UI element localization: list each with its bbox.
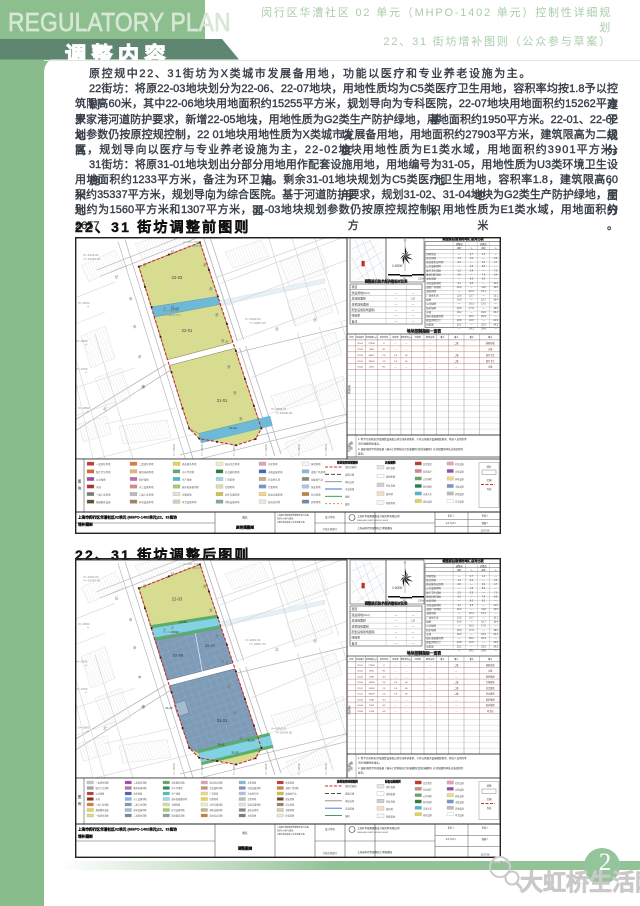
svg-text:配套设施建筑面积: 配套设施建筑面积 xyxy=(352,307,375,312)
svg-text:调整前后技术经济指标对比表: 调整前后技术经济指标对比表 xyxy=(365,601,409,606)
svg-text:原控规图则: 原控规图则 xyxy=(236,525,254,530)
svg-text:配套设施建筑面积: 配套设施建筑面积 xyxy=(352,629,375,634)
svg-text:—: — xyxy=(495,576,498,578)
svg-text:G2: G2 xyxy=(383,705,387,707)
svg-text:20.2: 20.2 xyxy=(469,316,474,318)
svg-text:—: — xyxy=(482,320,485,322)
svg-text:道路广场用地: 道路广场用地 xyxy=(311,470,326,474)
svg-text:—: — xyxy=(495,329,498,331)
svg-text:—: — xyxy=(412,614,415,617)
svg-text:1.8: 1.8 xyxy=(394,361,398,363)
svg-text:E1: E1 xyxy=(383,367,386,369)
svg-text:23.5: 23.5 xyxy=(481,324,486,326)
svg-text:—: — xyxy=(429,711,432,713)
svg-text:13.1: 13.1 xyxy=(481,613,486,615)
svg-text:1.3: 1.3 xyxy=(458,258,462,260)
svg-text:专科医院: 专科医院 xyxy=(486,680,496,684)
svg-text:—: — xyxy=(458,266,461,268)
svg-text:道路用地: 道路用地 xyxy=(426,289,436,293)
svg-text:22-01: 22-01 xyxy=(182,328,193,333)
svg-text:—: — xyxy=(395,614,398,617)
svg-text:Y=-19000: Y=-19000 xyxy=(200,443,204,456)
svg-text:15262: 15262 xyxy=(369,688,376,690)
svg-text:13.1: 13.1 xyxy=(481,291,486,293)
svg-text:13.7: 13.7 xyxy=(469,617,474,619)
svg-text:E1: E1 xyxy=(383,671,386,673)
svg-text:建筑限高(m): 建筑限高(m) xyxy=(401,335,413,339)
svg-text:水域: 水域 xyxy=(488,365,493,369)
svg-text:界线: 界线 xyxy=(487,806,492,810)
svg-text:15.7: 15.7 xyxy=(481,300,486,302)
svg-text:31-04: 31-04 xyxy=(247,739,255,743)
svg-text:24.8: 24.8 xyxy=(481,329,486,331)
svg-text:—: — xyxy=(429,705,432,707)
svg-text:Y=-19467.60: Y=-19467.60 xyxy=(83,579,101,583)
svg-text:—: — xyxy=(429,343,432,345)
svg-text:—: — xyxy=(395,625,398,628)
svg-text:%: % xyxy=(471,248,473,250)
svg-text:2. 城建(规划下阶段依据《城市工程管线综合实施细则(试)实: 2. 城建(规划下阶段依据《城市工程管线综合实施细则(试)实施细则》在控规图则中… xyxy=(358,447,464,451)
svg-text:街坊: 街坊 xyxy=(350,657,354,661)
svg-text:街坊: 街坊 xyxy=(350,335,354,339)
svg-text:Y=-19000: Y=-19000 xyxy=(232,443,236,456)
svg-text:+: + xyxy=(87,305,89,309)
svg-text:绿地: 绿地 xyxy=(426,298,431,302)
svg-text:12.5: 12.5 xyxy=(493,287,498,289)
svg-text:面积: 面积 xyxy=(457,246,461,250)
svg-text:用地面积(㎡): 用地面积(㎡) xyxy=(366,335,378,339)
svg-text:—: — xyxy=(455,699,458,701)
svg-text:商业服务业用地: 商业服务业用地 xyxy=(426,260,444,264)
svg-text:5.3: 5.3 xyxy=(482,266,486,268)
svg-text:22.9: 22.9 xyxy=(493,642,498,644)
svg-text:—: — xyxy=(405,671,408,673)
svg-text:2.6: 2.6 xyxy=(458,584,462,586)
svg-text:19.6: 19.6 xyxy=(481,312,486,314)
svg-text:3.4: 3.4 xyxy=(494,580,498,582)
svg-text:容积率: 容积率 xyxy=(392,335,398,339)
svg-text:—: — xyxy=(482,617,485,619)
svg-text:罗: 罗 xyxy=(163,307,166,311)
svg-text:城市发展备用地: 城市发展备用地 xyxy=(426,314,444,318)
svg-text:—: — xyxy=(470,312,473,314)
svg-text:对外交通用地: 对外交通用地 xyxy=(225,493,240,497)
svg-text:%: % xyxy=(495,248,497,250)
svg-text:—: — xyxy=(394,343,397,345)
svg-text:—: — xyxy=(405,699,408,701)
svg-text:建筑限高(m): 建筑限高(m) xyxy=(401,657,413,661)
svg-text:—: — xyxy=(455,367,458,369)
svg-text:Y=-19000: Y=-19000 xyxy=(232,763,236,775)
svg-text:22-01: 22-01 xyxy=(357,343,363,345)
svg-text:30517: 30517 xyxy=(369,355,376,357)
svg-text:用地面积(㎡): 用地面积(㎡) xyxy=(366,657,378,661)
svg-text:配套设施: 配套设施 xyxy=(426,335,434,339)
svg-text:设计单位: 设计单位 xyxy=(325,515,336,519)
svg-text:Y=-19000: Y=-19000 xyxy=(324,763,328,775)
svg-text:—: — xyxy=(429,355,432,357)
svg-text:—: — xyxy=(495,651,498,653)
svg-text:—: — xyxy=(482,580,485,582)
svg-text:22.1: 22.1 xyxy=(457,324,462,326)
svg-text:综合用地: 综合用地 xyxy=(311,493,321,497)
svg-text:)在控规图则中落实。: )在控规图则中落实。 xyxy=(358,442,381,446)
svg-text:医疗卫生用地: 医疗卫生用地 xyxy=(426,268,441,272)
svg-text:27903: 27903 xyxy=(369,343,376,345)
svg-text:—: — xyxy=(458,316,461,318)
svg-text:—: — xyxy=(429,349,432,351)
svg-text:调整前后技术经济指标对比表: 调整前后技术经济指标对比表 xyxy=(365,279,409,284)
svg-text:—: — xyxy=(405,665,408,667)
svg-text:5.2: 5.2 xyxy=(458,270,462,272)
svg-text:22-02: 22-02 xyxy=(357,671,363,673)
svg-text:按原控规: 按原控规 xyxy=(486,341,496,345)
svg-text:24.2: 24.2 xyxy=(493,324,498,326)
svg-text:变电站用地: 变电站用地 xyxy=(268,500,281,504)
svg-text:调整前: 调整前 xyxy=(456,242,464,246)
svg-text:20.8: 20.8 xyxy=(457,320,462,322)
svg-text:防护绿地: 防护绿地 xyxy=(486,697,496,701)
svg-text:X: X xyxy=(383,343,385,345)
svg-text:—: — xyxy=(495,291,498,293)
svg-text:—: — xyxy=(394,665,397,667)
svg-text:22-06: 22-06 xyxy=(173,653,184,658)
svg-text:20.9: 20.9 xyxy=(481,316,486,318)
svg-text:建设用地合计: 建设用地合计 xyxy=(426,318,441,322)
svg-text:36570: 36570 xyxy=(369,361,376,363)
svg-text:—: — xyxy=(482,308,485,310)
svg-text:综合医院: 综合医院 xyxy=(486,692,496,696)
svg-text:—: — xyxy=(458,613,461,615)
svg-text:备注: 备注 xyxy=(470,657,474,661)
svg-text:—: — xyxy=(482,258,485,260)
svg-text:9.2: 9.2 xyxy=(482,601,486,603)
svg-text:Y=-19006.82: Y=-19006.82 xyxy=(275,731,293,735)
svg-text:二级: 二级 xyxy=(454,686,459,690)
svg-text:—: — xyxy=(495,638,498,640)
svg-text:—: — xyxy=(394,711,397,713)
svg-text:C5: C5 xyxy=(383,688,387,690)
svg-text:8.5: 8.5 xyxy=(470,601,474,603)
svg-text:%: % xyxy=(495,570,497,572)
svg-text:一类工业用地: 一类工业用地 xyxy=(96,493,111,497)
svg-text:+: + xyxy=(87,730,89,734)
svg-text:1.4: 1.4 xyxy=(482,576,486,578)
svg-text:二类居住用地: 二类居住用地 xyxy=(139,462,154,466)
svg-text:其他图例: 其他图例 xyxy=(384,461,396,465)
svg-text:广场用地: 广场用地 xyxy=(225,477,235,481)
svg-text:公共设施用地: 公共设施用地 xyxy=(426,264,441,268)
svg-text:公共绿地: 公共绿地 xyxy=(426,624,436,628)
svg-text:1.4: 1.4 xyxy=(482,254,486,256)
svg-text:居住用地: 居住用地 xyxy=(426,256,436,260)
svg-text:—: — xyxy=(482,642,485,644)
svg-text:1560: 1560 xyxy=(369,699,375,701)
svg-text:—: — xyxy=(429,694,432,696)
svg-text:+: + xyxy=(85,371,87,375)
svg-text:地块编号: 地块编号 xyxy=(356,657,364,661)
svg-text:2.0: 2.0 xyxy=(470,580,474,582)
svg-text:2657: 2657 xyxy=(369,367,375,369)
svg-text:教育科研用地: 教育科研用地 xyxy=(426,595,441,599)
svg-text:9.2: 9.2 xyxy=(482,279,486,281)
svg-text:用地性质: 用地性质 xyxy=(380,335,388,339)
svg-text:控制用地: 控制用地 xyxy=(225,485,235,489)
svg-text:21.5: 21.5 xyxy=(469,320,474,322)
svg-text:—: — xyxy=(458,291,461,293)
svg-text:总用地: 总用地 xyxy=(426,644,434,648)
svg-text:其他用地: 其他用地 xyxy=(311,500,321,504)
svg-text:—: — xyxy=(429,688,432,690)
svg-text:社会福利用地: 社会福利用地 xyxy=(225,470,240,474)
svg-text:14.3: 14.3 xyxy=(457,300,462,302)
svg-text:建设用地(hm²): 建设用地(hm²) xyxy=(352,612,371,617)
svg-text:上海复旦规划建筑设计研究院有限公司: 上海复旦规划建筑设计研究院有限公司 xyxy=(357,826,400,830)
svg-text:调整前: 调整前 xyxy=(456,564,464,568)
svg-text:例: 例 xyxy=(78,801,82,806)
svg-text:31-01: 31-01 xyxy=(217,718,228,723)
svg-text:C5: C5 xyxy=(383,355,387,357)
svg-text:7.3: 7.3 xyxy=(494,592,498,594)
svg-text:—: — xyxy=(429,682,432,684)
svg-text:—: — xyxy=(412,309,415,312)
svg-text:—: — xyxy=(495,254,498,256)
svg-text:界线: 界线 xyxy=(487,487,492,491)
svg-text:31-04: 31-04 xyxy=(357,705,363,707)
svg-text:11.8: 11.8 xyxy=(481,609,486,611)
svg-text:20.3: 20.3 xyxy=(493,634,498,636)
svg-text:项目: 项目 xyxy=(352,285,358,289)
svg-text:备注: 备注 xyxy=(454,657,458,661)
svg-text:22-03: 22-03 xyxy=(357,355,363,357)
svg-text:22.9: 22.9 xyxy=(493,320,498,322)
svg-text:18.2: 18.2 xyxy=(457,312,462,314)
svg-text:3.4: 3.4 xyxy=(494,258,498,260)
svg-text:体育用地: 体育用地 xyxy=(311,462,321,466)
svg-text:地块控制指标一览表: 地块控制指标一览表 xyxy=(407,329,441,334)
svg-text:%: % xyxy=(471,570,473,572)
svg-text:1.3: 1.3 xyxy=(458,580,462,582)
svg-text:—: — xyxy=(495,304,498,306)
svg-text:20.8: 20.8 xyxy=(457,642,462,644)
svg-text:—: — xyxy=(429,699,432,701)
svg-text:20.3: 20.3 xyxy=(493,312,498,314)
svg-text:31-01: 31-01 xyxy=(217,398,228,403)
svg-text:—: — xyxy=(405,343,408,345)
svg-text:调整后: 调整后 xyxy=(480,564,488,568)
svg-text:医疗卫生: 医疗卫生 xyxy=(486,359,496,363)
svg-text:1.8: 1.8 xyxy=(411,297,415,301)
svg-text:—: — xyxy=(395,292,398,295)
svg-text:1.8: 1.8 xyxy=(394,694,398,696)
svg-text:+: + xyxy=(85,664,87,668)
svg-text:—: — xyxy=(395,620,398,623)
svg-text:16.9: 16.9 xyxy=(457,630,462,632)
svg-text:绿地率: 绿地率 xyxy=(415,335,421,339)
svg-text:10.4: 10.4 xyxy=(457,287,462,289)
svg-text:仓储用地: 仓储用地 xyxy=(182,493,192,497)
svg-text:行政主管部门: 行政主管部门 xyxy=(323,851,338,855)
svg-text:31-03: 31-03 xyxy=(357,367,363,369)
svg-text:—: — xyxy=(412,625,415,628)
svg-text:—: — xyxy=(394,705,397,707)
svg-text:—: — xyxy=(412,303,415,306)
svg-text:范围: 范围 xyxy=(486,797,492,801)
svg-text:环卫设施用地: 环卫设施用地 xyxy=(182,500,197,504)
svg-text:面积: 面积 xyxy=(481,246,485,250)
svg-text:道路广场用地: 道路广场用地 xyxy=(426,285,441,289)
svg-text:60: 60 xyxy=(405,694,408,696)
svg-text:60: 60 xyxy=(405,361,408,363)
svg-text:医疗卫生: 医疗卫生 xyxy=(486,353,496,357)
svg-text:图名: 图名 xyxy=(242,516,248,520)
svg-text:+: + xyxy=(87,626,89,630)
svg-text:8.5: 8.5 xyxy=(470,279,474,281)
svg-text:防护绿地: 防护绿地 xyxy=(426,628,436,632)
svg-text:—: — xyxy=(470,324,473,326)
svg-text:罗: 罗 xyxy=(171,305,174,309)
svg-text:—: — xyxy=(405,349,408,351)
svg-text:轨道交通用地: 轨道交通用地 xyxy=(268,493,283,497)
svg-text:18.2: 18.2 xyxy=(457,634,462,636)
svg-text:22.1: 22.1 xyxy=(457,646,462,648)
svg-text:文化用地: 文化用地 xyxy=(426,599,436,603)
svg-text:—: — xyxy=(412,315,415,318)
svg-text:注: 注 xyxy=(350,445,353,450)
svg-text:+: + xyxy=(87,410,89,414)
svg-text:面积: 面积 xyxy=(481,568,485,572)
svg-text:4.6: 4.6 xyxy=(470,266,474,268)
svg-text:地块指标: 地块指标 xyxy=(347,705,351,715)
svg-text:—: — xyxy=(395,298,398,301)
svg-text:8.6: 8.6 xyxy=(494,597,498,599)
svg-text:生产绿地: 生产绿地 xyxy=(182,477,192,481)
svg-text:G2: G2 xyxy=(383,699,387,701)
svg-text:地块编号: 地块编号 xyxy=(356,335,364,339)
svg-text:—: — xyxy=(455,349,458,351)
svg-text:商业服务用地: 商业服务用地 xyxy=(182,462,197,466)
svg-text:5.3: 5.3 xyxy=(482,588,486,590)
svg-text:—: — xyxy=(405,367,408,369)
svg-text:—: — xyxy=(482,270,485,272)
svg-text:—: — xyxy=(470,262,473,264)
svg-text:24.2: 24.2 xyxy=(493,646,498,648)
svg-text:—: — xyxy=(495,588,498,590)
svg-text:1950: 1950 xyxy=(369,676,375,678)
svg-text:用地性质: 用地性质 xyxy=(380,657,388,661)
svg-text:容积率: 容积率 xyxy=(392,657,398,661)
svg-text:—: — xyxy=(458,576,461,578)
svg-text:备注: 备注 xyxy=(488,335,492,339)
svg-text:—: — xyxy=(394,349,397,351)
svg-text:2. 城建(规划下阶段依据《城市工程管线综合实施细则(试)实: 2. 城建(规划下阶段依据《城市工程管线综合实施细则(试)实施细则》在控规图则中… xyxy=(358,766,464,770)
svg-text:1. 地下空间开发(涉及配套设施及公共空间开放要求、小区公共: 1. 地下空间开发(涉及配套设施及公共空间开放要求、小区公共服务设施配套要求、物… xyxy=(358,756,467,760)
svg-text:8.6: 8.6 xyxy=(494,275,498,277)
svg-text:31-02: 31-02 xyxy=(357,699,363,701)
svg-text:X: X xyxy=(383,665,385,667)
svg-text:+: + xyxy=(85,343,87,347)
svg-text:12.4: 12.4 xyxy=(469,613,474,615)
svg-text:—: — xyxy=(412,637,415,640)
svg-text:—: — xyxy=(470,597,473,599)
svg-text:防护绿地: 防护绿地 xyxy=(426,306,436,310)
svg-text:—: — xyxy=(429,361,432,363)
svg-text:—: — xyxy=(495,316,498,318)
svg-text:用地性质: 用地性质 xyxy=(426,574,436,578)
svg-text:60: 60 xyxy=(405,682,408,684)
svg-text:35337: 35337 xyxy=(369,694,376,696)
svg-text:增补图则: 增补图则 xyxy=(78,834,93,839)
svg-text:市政设施用地: 市政设施用地 xyxy=(426,603,441,607)
svg-text:—: — xyxy=(482,605,485,607)
svg-text:增补图则: 增补图则 xyxy=(78,522,93,527)
svg-text:13.7: 13.7 xyxy=(469,295,474,297)
svg-text:二级: 二级 xyxy=(454,341,459,345)
svg-text:—: — xyxy=(412,642,415,645)
svg-text:公共设施用地: 公共设施用地 xyxy=(426,586,441,590)
svg-text:—: — xyxy=(470,609,473,611)
svg-text:广场停车场: 广场停车场 xyxy=(426,615,439,619)
svg-text:+: + xyxy=(85,691,87,695)
svg-text:总建筑面积: 总建筑面积 xyxy=(352,296,367,301)
svg-text:17.6: 17.6 xyxy=(469,630,474,632)
svg-text:—: — xyxy=(394,671,397,673)
svg-text:7.3: 7.3 xyxy=(494,270,498,272)
svg-text:22-01: 22-01 xyxy=(357,665,363,667)
svg-text:水工设施用地: 水工设施用地 xyxy=(139,485,154,489)
svg-text:—: — xyxy=(482,630,485,632)
svg-text:按原控规: 按原控规 xyxy=(486,663,496,667)
svg-text:31-02: 31-02 xyxy=(217,742,225,746)
svg-text:—: — xyxy=(495,601,498,603)
svg-text:广场停车场: 广场停车场 xyxy=(426,293,439,297)
svg-text:1.8: 1.8 xyxy=(394,682,398,684)
svg-text:城市发展备用地: 城市发展备用地 xyxy=(426,636,444,640)
svg-text:城市发展备用地: 城市发展备用地 xyxy=(182,485,199,489)
svg-text:文化用地: 文化用地 xyxy=(268,462,278,466)
svg-text:15255: 15255 xyxy=(369,682,376,684)
svg-text:地块指标: 地块指标 xyxy=(347,384,351,394)
svg-text:防护绿地: 防护绿地 xyxy=(486,674,496,678)
svg-text:二类工业用地: 二类工业用地 xyxy=(139,493,154,497)
svg-text:备注: 备注 xyxy=(352,318,358,323)
svg-text:—: — xyxy=(458,279,461,281)
svg-text:2.6: 2.6 xyxy=(458,262,462,264)
svg-text:—: — xyxy=(470,287,473,289)
svg-text:1.8: 1.8 xyxy=(394,688,398,690)
svg-text:备注: 备注 xyxy=(440,335,444,339)
svg-text:例: 例 xyxy=(78,486,82,491)
svg-text:地块控制指标一览表: 地块控制指标一览表 xyxy=(407,651,441,656)
svg-text:绿地: 绿地 xyxy=(426,620,431,624)
svg-text:11.2: 11.2 xyxy=(494,605,499,607)
svg-text:C5: C5 xyxy=(383,694,387,696)
svg-text:图名: 图名 xyxy=(242,831,248,835)
svg-text:19.0: 19.0 xyxy=(493,630,498,632)
svg-text:31-05: 31-05 xyxy=(165,706,173,710)
svg-text:增补: 增补 xyxy=(486,465,492,469)
svg-text:申: 申 xyxy=(133,645,136,650)
svg-text:—: — xyxy=(495,626,498,628)
svg-text:C5: C5 xyxy=(383,682,387,684)
svg-text:—: — xyxy=(405,705,408,707)
svg-text:绿地率: 绿地率 xyxy=(415,657,421,661)
svg-text:Y=-3803.89: Y=-3803.89 xyxy=(187,566,203,570)
svg-text:—: — xyxy=(458,638,461,640)
svg-text:Y=-3485.747: Y=-3485.747 xyxy=(249,321,267,325)
svg-text:—: — xyxy=(429,676,432,678)
svg-text:要求。: 要求。 xyxy=(358,771,366,775)
